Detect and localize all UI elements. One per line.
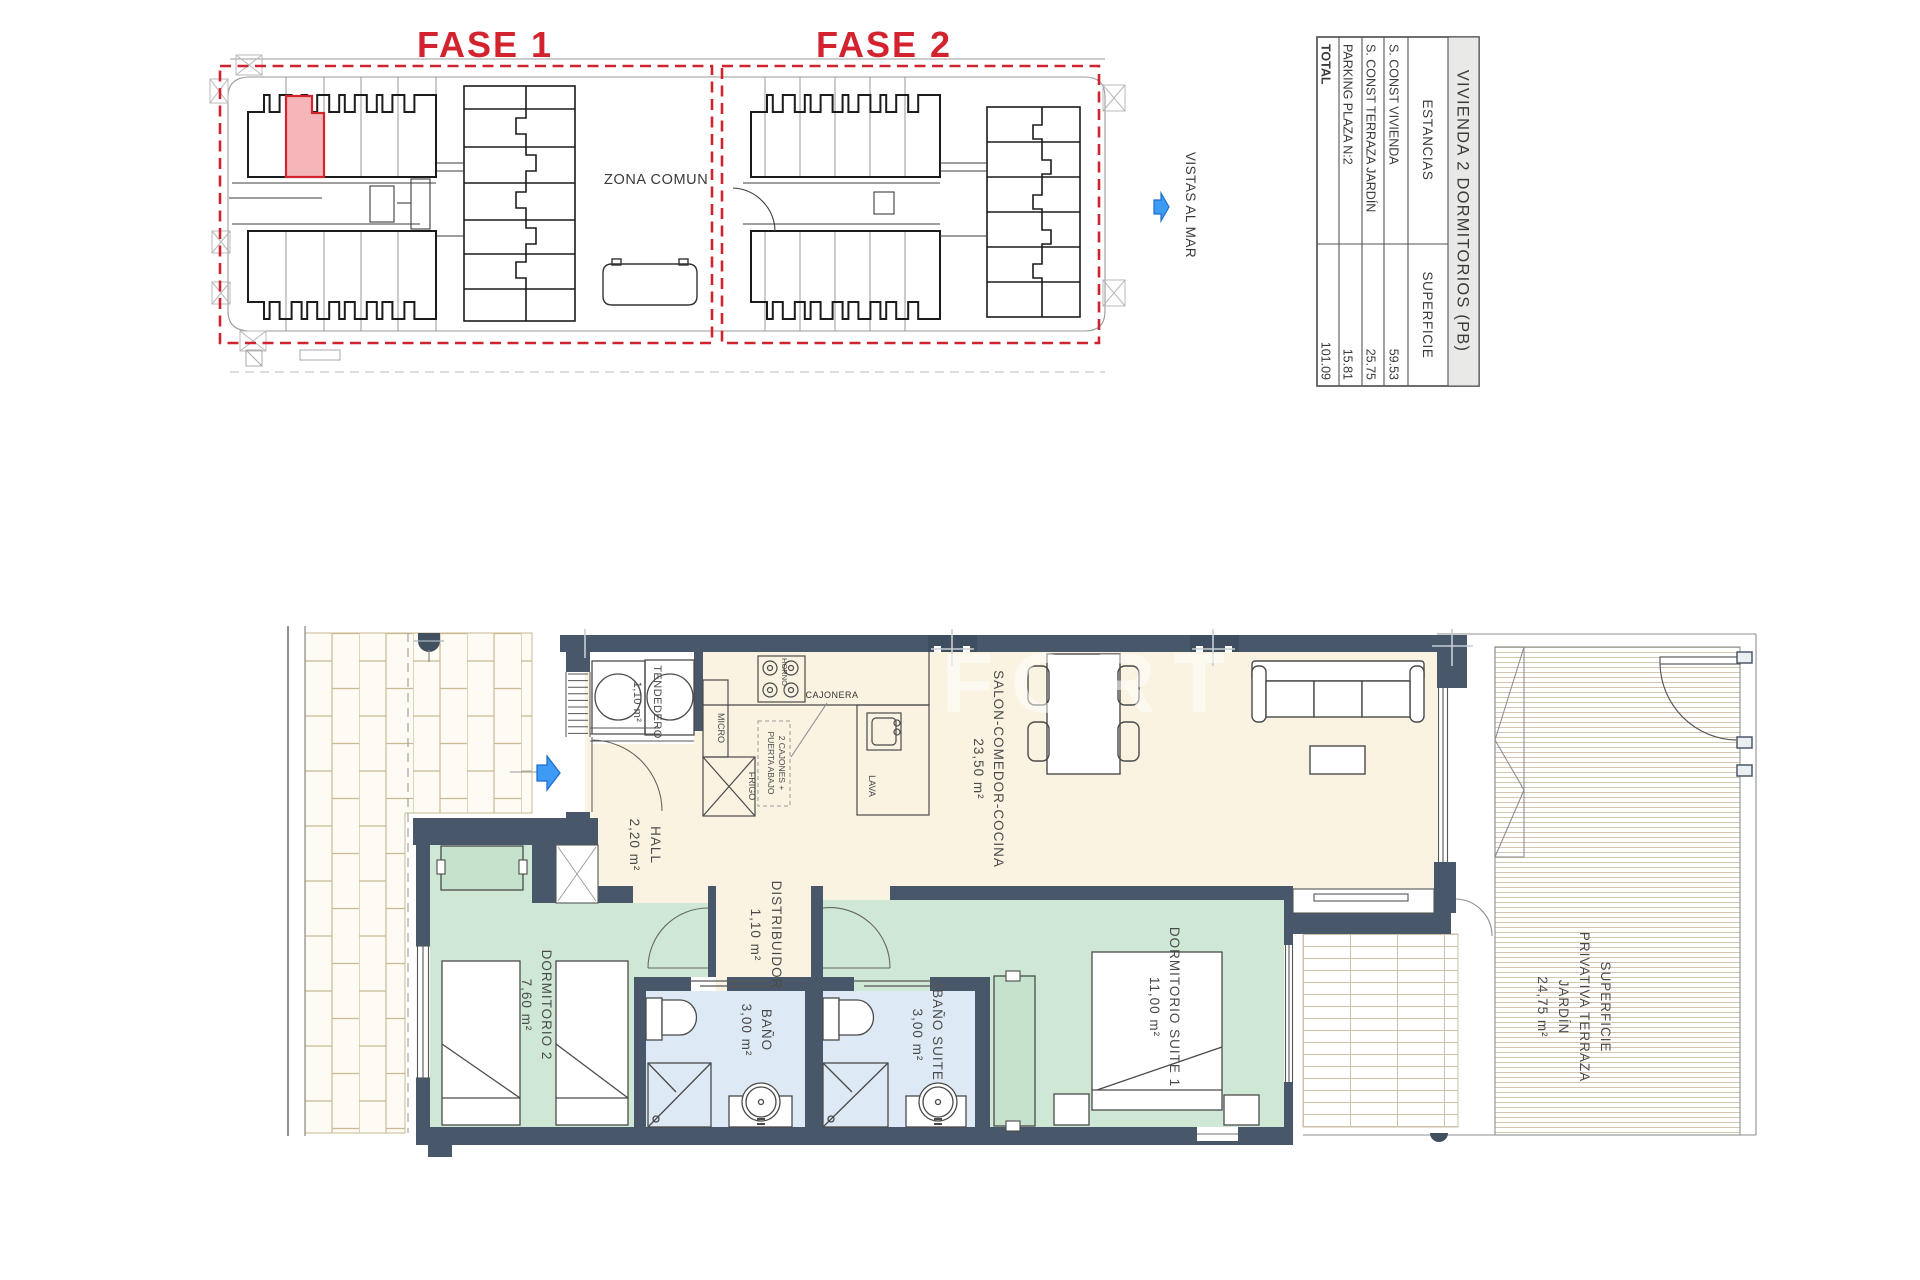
- svg-text:PARKING PLAZA N:2: PARKING PLAZA N:2: [1341, 44, 1355, 165]
- svg-text:JARDÍN: JARDÍN: [1556, 980, 1571, 1035]
- svg-text:23,50 m²: 23,50 m²: [971, 738, 986, 799]
- svg-text:HALL: HALL: [648, 826, 663, 864]
- svg-text:ZONA COMUN: ZONA COMUN: [604, 172, 708, 188]
- svg-text:25.75: 25.75: [1364, 349, 1378, 380]
- svg-text:VIVIENDA 2 DORMITORIOS (PB): VIVIENDA 2 DORMITORIOS (PB): [1454, 70, 1472, 352]
- svg-text:59.53: 59.53: [1387, 349, 1401, 380]
- svg-text:VISTAS AL MAR: VISTAS AL MAR: [1183, 152, 1198, 258]
- svg-text:BAÑO SUITE: BAÑO SUITE: [930, 989, 945, 1081]
- svg-text:DORMITORIO SUITE 1: DORMITORIO SUITE 1: [1167, 927, 1182, 1087]
- svg-text:TENDEDERO: TENDEDERO: [651, 665, 663, 739]
- svg-text:24,75 m²: 24,75 m²: [1535, 976, 1550, 1037]
- svg-text:FORT: FORT: [942, 636, 1243, 730]
- svg-text:11,00 m²: 11,00 m²: [1147, 977, 1162, 1037]
- svg-text:BAÑO: BAÑO: [759, 1009, 774, 1051]
- svg-text:DORMITORIO 2: DORMITORIO 2: [539, 950, 554, 1061]
- svg-text:3,00 m²: 3,00 m²: [910, 1009, 925, 1062]
- svg-text:SUPERFICIE: SUPERFICIE: [1598, 961, 1613, 1052]
- svg-text:3,00 m²: 3,00 m²: [739, 1004, 754, 1057]
- svg-text:1,10 m²: 1,10 m²: [748, 909, 763, 962]
- svg-text:2,20 m²: 2,20 m²: [627, 819, 642, 872]
- svg-text:LAVA: LAVA: [867, 775, 877, 797]
- svg-text:PUERTA ABAJO: PUERTA ABAJO: [766, 732, 776, 795]
- svg-text:1,10 m²: 1,10 m²: [631, 682, 643, 723]
- svg-text:SUPERFICIE: SUPERFICIE: [1420, 271, 1435, 358]
- svg-text:7,60 m²: 7,60 m²: [519, 979, 534, 1032]
- svg-text:MICRO: MICRO: [716, 713, 726, 743]
- svg-text:FASE 2: FASE 2: [816, 24, 952, 65]
- svg-text:ESTANCIAS: ESTANCIAS: [1420, 100, 1435, 181]
- svg-text:CAJONERA: CAJONERA: [805, 690, 858, 700]
- svg-text:S. CONST VIVIENDA: S. CONST VIVIENDA: [1387, 44, 1401, 165]
- svg-text:S. CONST TERRAZA JARDÍN: S. CONST TERRAZA JARDÍN: [1364, 44, 1379, 212]
- svg-text:15.81: 15.81: [1341, 349, 1355, 380]
- svg-text:2 CAJONES +: 2 CAJONES +: [777, 736, 787, 791]
- svg-text:DISTRIBUIDOR: DISTRIBUIDOR: [769, 881, 784, 990]
- svg-text:SALON-COMEDOR-COCINA: SALON-COMEDOR-COCINA: [991, 670, 1006, 868]
- svg-text:PRIVATIVA TERRAZA: PRIVATIVA TERRAZA: [1577, 932, 1592, 1082]
- svg-text:FASE 1: FASE 1: [417, 24, 553, 65]
- svg-text:HORNO: HORNO: [780, 658, 789, 686]
- svg-text:101.09: 101.09: [1319, 342, 1333, 380]
- svg-text:FRIGO: FRIGO: [747, 772, 757, 801]
- svg-text:TOTAL: TOTAL: [1319, 44, 1333, 85]
